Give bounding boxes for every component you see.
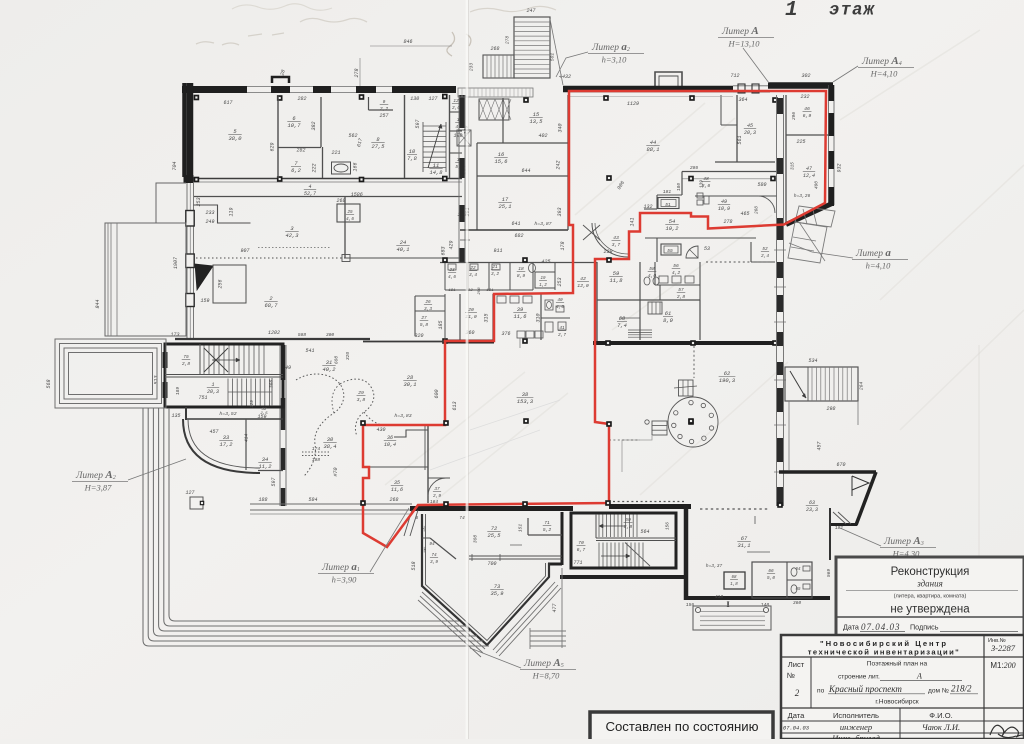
svg-text:по: по bbox=[817, 688, 825, 695]
svg-text:629: 629 bbox=[270, 142, 276, 151]
svg-text:6,9: 6,9 bbox=[803, 113, 812, 119]
svg-text:I: I bbox=[726, 600, 729, 609]
svg-text:751: 751 bbox=[198, 395, 207, 401]
svg-text:418: 418 bbox=[715, 594, 724, 600]
svg-text:3,2: 3,2 bbox=[491, 272, 499, 277]
svg-text:561: 561 bbox=[737, 135, 743, 144]
svg-text:М1:200: М1:200 bbox=[990, 661, 1015, 670]
svg-text:13,5: 13,5 bbox=[530, 119, 544, 125]
svg-text:130: 130 bbox=[410, 96, 419, 102]
svg-text:Составлен по состоянию: Составлен по состоянию bbox=[605, 719, 758, 734]
svg-text:249: 249 bbox=[205, 219, 214, 225]
svg-text:256: 256 bbox=[478, 287, 482, 295]
svg-text:12,4: 12,4 bbox=[803, 173, 815, 179]
svg-text:38,0: 38,0 bbox=[229, 136, 243, 142]
svg-text:457: 457 bbox=[209, 429, 218, 435]
svg-text:61: 61 bbox=[665, 311, 671, 317]
svg-text:366: 366 bbox=[269, 380, 275, 389]
svg-text:597: 597 bbox=[271, 477, 277, 486]
svg-text:11,2: 11,2 bbox=[259, 464, 273, 470]
svg-text:173: 173 bbox=[170, 332, 179, 338]
svg-text:дом №: дом № bbox=[928, 688, 949, 695]
svg-text:1,2: 1,2 bbox=[539, 284, 547, 288]
svg-text:181: 181 bbox=[448, 289, 456, 293]
svg-text:568: 568 bbox=[46, 379, 52, 388]
svg-text:247: 247 bbox=[526, 8, 535, 14]
svg-text:технической инвентаризации": технической инвентаризации" bbox=[808, 648, 960, 657]
svg-text:H=3,87: H=3,87 bbox=[84, 483, 112, 493]
svg-text:h=3,87: h=3,87 bbox=[534, 221, 551, 227]
svg-text:H=4,10: H=4,10 bbox=[870, 69, 898, 79]
svg-text:382: 382 bbox=[311, 121, 317, 130]
svg-text:35,9: 35,9 bbox=[491, 591, 505, 597]
svg-text:1,8: 1,8 bbox=[730, 583, 738, 587]
svg-text:132: 132 bbox=[643, 204, 652, 210]
svg-text:156: 156 bbox=[666, 522, 671, 530]
svg-text:10,9: 10,9 bbox=[718, 206, 730, 212]
svg-text:этаж: этаж bbox=[829, 1, 876, 21]
svg-text:30,1: 30,1 bbox=[404, 382, 417, 388]
svg-text:181: 181 bbox=[663, 189, 672, 195]
svg-text:268: 268 bbox=[490, 46, 499, 52]
svg-text:11,6: 11,6 bbox=[391, 487, 403, 493]
svg-text:h=3,26: h=3,26 bbox=[794, 193, 811, 199]
svg-text:180: 180 bbox=[677, 183, 682, 191]
svg-text:39: 39 bbox=[517, 307, 524, 313]
svg-text:14,8: 14,8 bbox=[430, 170, 444, 176]
svg-text:221: 221 bbox=[331, 150, 340, 156]
svg-text:613: 613 bbox=[452, 401, 458, 410]
svg-text:340: 340 bbox=[558, 123, 564, 132]
svg-text:315: 315 bbox=[484, 313, 490, 322]
svg-text:здания: здания bbox=[916, 579, 943, 589]
svg-text:580: 580 bbox=[757, 182, 766, 188]
svg-text:320: 320 bbox=[414, 333, 423, 339]
svg-text:54: 54 bbox=[669, 219, 675, 225]
svg-text:Чаюк Л.И.: Чаюк Л.И. bbox=[922, 722, 960, 732]
svg-text:№: № bbox=[787, 671, 795, 680]
svg-text:253: 253 bbox=[196, 197, 202, 206]
svg-text:27,5: 27,5 bbox=[372, 144, 386, 150]
svg-text:541: 541 bbox=[305, 348, 314, 354]
svg-text:181: 181 bbox=[835, 525, 844, 531]
svg-text:584: 584 bbox=[308, 497, 317, 503]
svg-text:h=3,52: h=3,52 bbox=[219, 411, 236, 417]
svg-text:278: 278 bbox=[354, 68, 360, 77]
svg-text:66: 66 bbox=[768, 569, 774, 574]
svg-text:72: 72 bbox=[491, 526, 498, 532]
svg-text:63: 63 bbox=[809, 500, 815, 506]
svg-text:21: 21 bbox=[492, 265, 498, 270]
svg-text:3,9: 3,9 bbox=[430, 560, 438, 565]
svg-text:199: 199 bbox=[453, 133, 462, 139]
svg-text:49: 49 bbox=[285, 365, 291, 371]
svg-text:166: 166 bbox=[353, 162, 359, 171]
svg-text:5,2: 5,2 bbox=[543, 527, 552, 533]
svg-text:70: 70 bbox=[578, 540, 584, 546]
svg-text:129: 129 bbox=[251, 400, 255, 408]
svg-text:932: 932 bbox=[837, 163, 843, 172]
svg-text:31: 31 bbox=[326, 360, 332, 366]
svg-text:h=3,83: h=3,83 bbox=[394, 413, 411, 419]
svg-text:37: 37 bbox=[434, 487, 440, 492]
svg-text:225: 225 bbox=[796, 139, 805, 145]
svg-text:268: 268 bbox=[336, 198, 345, 204]
svg-text:H=8,70: H=8,70 bbox=[532, 671, 560, 681]
svg-text:844: 844 bbox=[95, 299, 101, 308]
svg-text:20,3: 20,3 bbox=[744, 130, 756, 136]
svg-text:174: 174 bbox=[312, 446, 321, 452]
svg-text:771: 771 bbox=[573, 560, 582, 566]
svg-text:239: 239 bbox=[603, 249, 612, 255]
svg-text:46: 46 bbox=[804, 106, 810, 112]
svg-text:Подпись: Подпись bbox=[910, 623, 939, 632]
svg-text:644: 644 bbox=[521, 168, 530, 174]
svg-text:2: 2 bbox=[795, 688, 800, 698]
svg-text:139: 139 bbox=[700, 180, 705, 188]
svg-text:Литер А4: Литер А4 bbox=[861, 55, 902, 67]
svg-text:185: 185 bbox=[438, 320, 444, 329]
svg-text:75: 75 bbox=[183, 354, 189, 360]
svg-text:51: 51 bbox=[665, 202, 671, 208]
svg-text:11,8: 11,8 bbox=[610, 278, 624, 284]
svg-text:#70: #70 bbox=[333, 467, 339, 476]
svg-text:Дата: Дата bbox=[788, 711, 806, 720]
svg-text:Дата: Дата bbox=[843, 623, 859, 632]
svg-text:189: 189 bbox=[176, 387, 181, 395]
svg-text:17: 17 bbox=[502, 197, 509, 203]
svg-text:414: 414 bbox=[244, 434, 250, 443]
svg-text:911: 911 bbox=[493, 248, 502, 254]
svg-text:43: 43 bbox=[613, 235, 619, 241]
svg-text:600: 600 bbox=[434, 389, 440, 398]
svg-text:477: 477 bbox=[552, 603, 558, 612]
svg-text:Литер а: Литер а bbox=[855, 247, 891, 259]
svg-text:233: 233 bbox=[205, 210, 214, 216]
svg-text:25,1: 25,1 bbox=[499, 204, 512, 210]
svg-text:683: 683 bbox=[441, 246, 447, 255]
svg-text:490: 490 bbox=[815, 181, 820, 189]
svg-text:59: 59 bbox=[613, 271, 620, 277]
svg-text:4,2: 4,2 bbox=[672, 270, 681, 276]
svg-text:153,3: 153,3 bbox=[517, 399, 534, 405]
svg-text:не утверждена: не утверждена bbox=[890, 604, 970, 616]
svg-text:(литера, квартира, комната): (литера, квартира, комната) bbox=[894, 594, 967, 600]
svg-text:310: 310 bbox=[536, 313, 542, 322]
svg-text:268: 268 bbox=[389, 497, 398, 503]
svg-text:465: 465 bbox=[740, 211, 749, 217]
svg-text:52: 52 bbox=[762, 247, 768, 252]
svg-text:h=3,37: h=3,37 bbox=[706, 563, 723, 569]
svg-text:52,7: 52,7 bbox=[304, 191, 316, 197]
svg-text:8,0: 8,0 bbox=[663, 318, 673, 324]
svg-text:38,4: 38,4 bbox=[324, 444, 337, 450]
svg-text:27: 27 bbox=[421, 315, 427, 321]
svg-text:25: 25 bbox=[347, 210, 353, 215]
svg-text:67: 67 bbox=[741, 536, 748, 542]
svg-text:55: 55 bbox=[667, 248, 673, 254]
svg-text:315: 315 bbox=[791, 162, 796, 170]
svg-text:07.04.03: 07.04.03 bbox=[861, 622, 901, 632]
svg-text:42,3: 42,3 bbox=[286, 233, 300, 239]
svg-text:Литер А2: Литер А2 bbox=[75, 469, 116, 481]
svg-text:60: 60 bbox=[619, 316, 626, 322]
svg-text:518: 518 bbox=[411, 561, 417, 570]
svg-text:286: 286 bbox=[690, 165, 699, 171]
svg-text:2,2: 2,2 bbox=[380, 106, 389, 112]
svg-text:178: 178 bbox=[560, 241, 566, 250]
svg-text:131: 131 bbox=[486, 289, 494, 293]
svg-text:71: 71 bbox=[544, 520, 550, 526]
svg-text:Литер а2: Литер а2 bbox=[591, 41, 630, 53]
svg-text:07.04.03: 07.04.03 bbox=[783, 726, 810, 732]
svg-text:h=3,10: h=3,10 bbox=[602, 55, 628, 65]
svg-text:151: 151 bbox=[518, 524, 524, 533]
svg-text:302: 302 bbox=[801, 73, 810, 79]
svg-text:907: 907 bbox=[240, 248, 249, 254]
svg-text:430: 430 bbox=[376, 427, 385, 433]
svg-text:641: 641 bbox=[511, 221, 520, 227]
svg-text:2,8: 2,8 bbox=[677, 294, 686, 300]
svg-text:58: 58 bbox=[649, 266, 655, 272]
svg-text:159: 159 bbox=[200, 298, 209, 304]
svg-text:40,1: 40,1 bbox=[397, 247, 410, 253]
svg-text:40: 40 bbox=[557, 298, 563, 303]
svg-text:┤: ┤ bbox=[421, 525, 425, 532]
svg-text:218/2: 218/2 bbox=[951, 684, 972, 694]
svg-text:74: 74 bbox=[459, 515, 465, 521]
svg-text:20,3: 20,3 bbox=[207, 389, 219, 395]
svg-text:23: 23 bbox=[449, 268, 455, 273]
svg-text:33: 33 bbox=[223, 435, 230, 441]
svg-text:188: 188 bbox=[312, 457, 321, 463]
svg-text:2,4: 2,4 bbox=[761, 254, 769, 259]
svg-text:846: 846 bbox=[403, 39, 412, 45]
svg-text:56: 56 bbox=[673, 263, 679, 269]
svg-text:строение лит.: строение лит. bbox=[838, 674, 880, 681]
svg-text:2,9: 2,9 bbox=[433, 494, 441, 499]
svg-text:15,6: 15,6 bbox=[495, 159, 509, 165]
svg-text:232: 232 bbox=[800, 94, 809, 100]
svg-text:34: 34 bbox=[262, 457, 268, 463]
svg-text:1907: 1907 bbox=[173, 257, 179, 269]
svg-text:188: 188 bbox=[258, 497, 267, 503]
svg-text:9: 9 bbox=[383, 99, 386, 105]
svg-text:402: 402 bbox=[538, 133, 547, 139]
svg-text:74: 74 bbox=[431, 553, 437, 558]
svg-text:127: 127 bbox=[428, 96, 437, 102]
svg-text:88,1: 88,1 bbox=[647, 147, 660, 153]
svg-text:45: 45 bbox=[747, 123, 753, 129]
svg-text:2,5: 2,5 bbox=[260, 412, 268, 416]
svg-text:682: 682 bbox=[514, 233, 523, 239]
svg-text:17,2: 17,2 bbox=[220, 442, 234, 448]
svg-text:127: 127 bbox=[185, 490, 194, 496]
svg-text:1129: 1129 bbox=[627, 101, 639, 107]
svg-text:25,5: 25,5 bbox=[488, 533, 502, 539]
svg-text:119: 119 bbox=[229, 207, 235, 216]
svg-text:1202: 1202 bbox=[268, 330, 280, 336]
svg-text:4,6: 4,6 bbox=[448, 275, 456, 280]
svg-text:Литер А5: Литер А5 bbox=[523, 657, 564, 669]
svg-text:Исполнитель: Исполнитель bbox=[833, 711, 879, 720]
svg-text:42: 42 bbox=[580, 276, 586, 282]
svg-text:Инж.-бригад: Инж.-бригад bbox=[831, 733, 881, 739]
svg-text:278: 278 bbox=[723, 219, 732, 225]
svg-text:6: 6 bbox=[416, 516, 419, 521]
svg-text:23,3: 23,3 bbox=[806, 507, 818, 513]
svg-text:11: 11 bbox=[433, 163, 439, 169]
svg-text:11,6: 11,6 bbox=[514, 314, 528, 320]
svg-text:190,3: 190,3 bbox=[719, 378, 736, 384]
svg-text:10,7: 10,7 bbox=[288, 123, 302, 129]
svg-text:12,0: 12,0 bbox=[577, 283, 589, 289]
svg-text:3,3: 3,3 bbox=[424, 307, 432, 312]
svg-text:597: 597 bbox=[415, 119, 421, 128]
svg-text:141: 141 bbox=[630, 217, 636, 226]
svg-text:8,9: 8,9 bbox=[517, 273, 526, 279]
svg-text:Реконструкция: Реконструкция bbox=[891, 566, 970, 578]
svg-text:282: 282 bbox=[296, 148, 305, 154]
svg-text:62: 62 bbox=[724, 371, 731, 377]
svg-text:300: 300 bbox=[326, 332, 335, 338]
svg-text:47: 47 bbox=[806, 166, 812, 172]
svg-text:3,8: 3,8 bbox=[357, 397, 366, 403]
svg-text:1: 1 bbox=[211, 382, 214, 388]
svg-text:2,8: 2,8 bbox=[182, 361, 191, 367]
svg-text:h=3,90: h=3,90 bbox=[332, 575, 358, 585]
svg-text:617: 617 bbox=[223, 100, 232, 106]
svg-text:457: 457 bbox=[817, 441, 823, 450]
svg-text:18: 18 bbox=[518, 266, 524, 272]
svg-text:29: 29 bbox=[358, 390, 364, 396]
svg-text:222: 222 bbox=[312, 163, 318, 172]
svg-text:704: 704 bbox=[172, 161, 178, 170]
svg-text:H=13,10: H=13,10 bbox=[728, 39, 761, 49]
svg-text:501: 501 bbox=[550, 53, 556, 62]
svg-text:1586: 1586 bbox=[351, 192, 363, 198]
svg-text:6,2: 6,2 bbox=[291, 168, 301, 174]
svg-text:35: 35 bbox=[394, 480, 400, 486]
svg-text:38: 38 bbox=[522, 392, 529, 398]
svg-text:31,1: 31,1 bbox=[738, 543, 751, 549]
svg-text:6,7: 6,7 bbox=[577, 547, 586, 553]
svg-text:233: 233 bbox=[469, 63, 475, 72]
svg-text:282: 282 bbox=[297, 96, 306, 102]
svg-text:257: 257 bbox=[379, 113, 388, 119]
svg-text:242: 242 bbox=[556, 160, 562, 169]
svg-text:44: 44 bbox=[650, 140, 656, 146]
svg-text:А: А bbox=[916, 672, 922, 681]
svg-text:268: 268 bbox=[755, 206, 760, 214]
svg-text:320: 320 bbox=[345, 352, 351, 361]
svg-text:19,2: 19,2 bbox=[666, 226, 680, 232]
svg-text:68,7: 68,7 bbox=[265, 303, 279, 309]
svg-text:40,2: 40,2 bbox=[323, 367, 337, 373]
svg-text:569: 569 bbox=[827, 569, 832, 577]
svg-text:15: 15 bbox=[533, 112, 540, 118]
svg-text:253: 253 bbox=[557, 277, 563, 286]
svg-text:700: 700 bbox=[487, 561, 496, 567]
svg-text:Ф.И.О.: Ф.И.О. bbox=[929, 711, 952, 720]
svg-text:360: 360 bbox=[793, 600, 802, 606]
svg-text:5,0: 5,0 bbox=[767, 576, 775, 581]
svg-text:69: 69 bbox=[625, 517, 631, 523]
svg-text:Лист: Лист bbox=[788, 660, 805, 669]
svg-text:2,7: 2,7 bbox=[558, 333, 566, 338]
svg-text:3,4: 3,4 bbox=[469, 273, 477, 278]
svg-text:Литер а1: Литер а1 bbox=[321, 561, 360, 573]
svg-text:364: 364 bbox=[738, 97, 747, 103]
svg-text:298: 298 bbox=[826, 406, 835, 412]
svg-text:16: 16 bbox=[498, 152, 505, 158]
svg-text:393: 393 bbox=[557, 207, 563, 216]
svg-text:534: 534 bbox=[808, 358, 817, 364]
svg-text:564: 564 bbox=[640, 529, 649, 535]
svg-text:З-2287: З-2287 bbox=[991, 643, 1016, 653]
svg-text:712: 712 bbox=[730, 73, 739, 79]
svg-text:12: 12 bbox=[453, 99, 459, 104]
svg-text:4: 4 bbox=[308, 184, 311, 190]
svg-text:670: 670 bbox=[836, 462, 845, 468]
svg-text:10,4: 10,4 bbox=[384, 442, 396, 448]
svg-text:7,4: 7,4 bbox=[617, 323, 627, 329]
svg-text:1: 1 bbox=[785, 0, 798, 22]
svg-text:h=4,10: h=4,10 bbox=[866, 261, 892, 271]
svg-text:Литер А3: Литер А3 bbox=[883, 535, 924, 547]
svg-text:Поэтажный план на: Поэтажный план на bbox=[867, 660, 928, 668]
svg-text:53: 53 bbox=[704, 246, 710, 252]
svg-text:3,7: 3,7 bbox=[612, 242, 621, 248]
svg-text:73: 73 bbox=[494, 584, 501, 590]
svg-text:инженер: инженер bbox=[840, 722, 872, 732]
svg-text:28: 28 bbox=[407, 375, 414, 381]
svg-text:562: 562 bbox=[348, 133, 357, 139]
svg-text:608: 608 bbox=[334, 356, 340, 365]
svg-text:588: 588 bbox=[298, 332, 307, 338]
svg-text:278: 278 bbox=[505, 36, 511, 45]
svg-text:8,8: 8,8 bbox=[624, 524, 633, 530]
svg-text:5,8: 5,8 bbox=[420, 322, 429, 328]
svg-text:135: 135 bbox=[171, 413, 180, 419]
svg-text:296: 296 bbox=[792, 112, 797, 120]
svg-text:10: 10 bbox=[409, 149, 416, 155]
svg-text:57: 57 bbox=[678, 287, 684, 293]
svg-text:264: 264 bbox=[859, 382, 865, 391]
svg-text:20: 20 bbox=[468, 307, 474, 313]
svg-text:49: 49 bbox=[721, 199, 727, 205]
svg-text:24: 24 bbox=[400, 240, 406, 246]
svg-text:36: 36 bbox=[387, 435, 393, 441]
svg-text:308: 308 bbox=[473, 535, 479, 544]
svg-text:376: 376 bbox=[501, 331, 510, 337]
svg-text:4,6: 4,6 bbox=[346, 217, 354, 222]
svg-text:256: 256 bbox=[218, 279, 224, 288]
svg-text:30: 30 bbox=[327, 437, 334, 443]
svg-text:г.Новосибирск: г.Новосибирск bbox=[875, 698, 918, 706]
svg-text:94: 94 bbox=[429, 542, 435, 547]
svg-text:7,8: 7,8 bbox=[407, 156, 417, 162]
svg-text:26: 26 bbox=[425, 300, 431, 305]
svg-text:Красный проспект: Красный проспект bbox=[828, 684, 902, 694]
svg-text:429: 429 bbox=[449, 240, 455, 249]
svg-text:Литер А: Литер А bbox=[721, 25, 759, 37]
